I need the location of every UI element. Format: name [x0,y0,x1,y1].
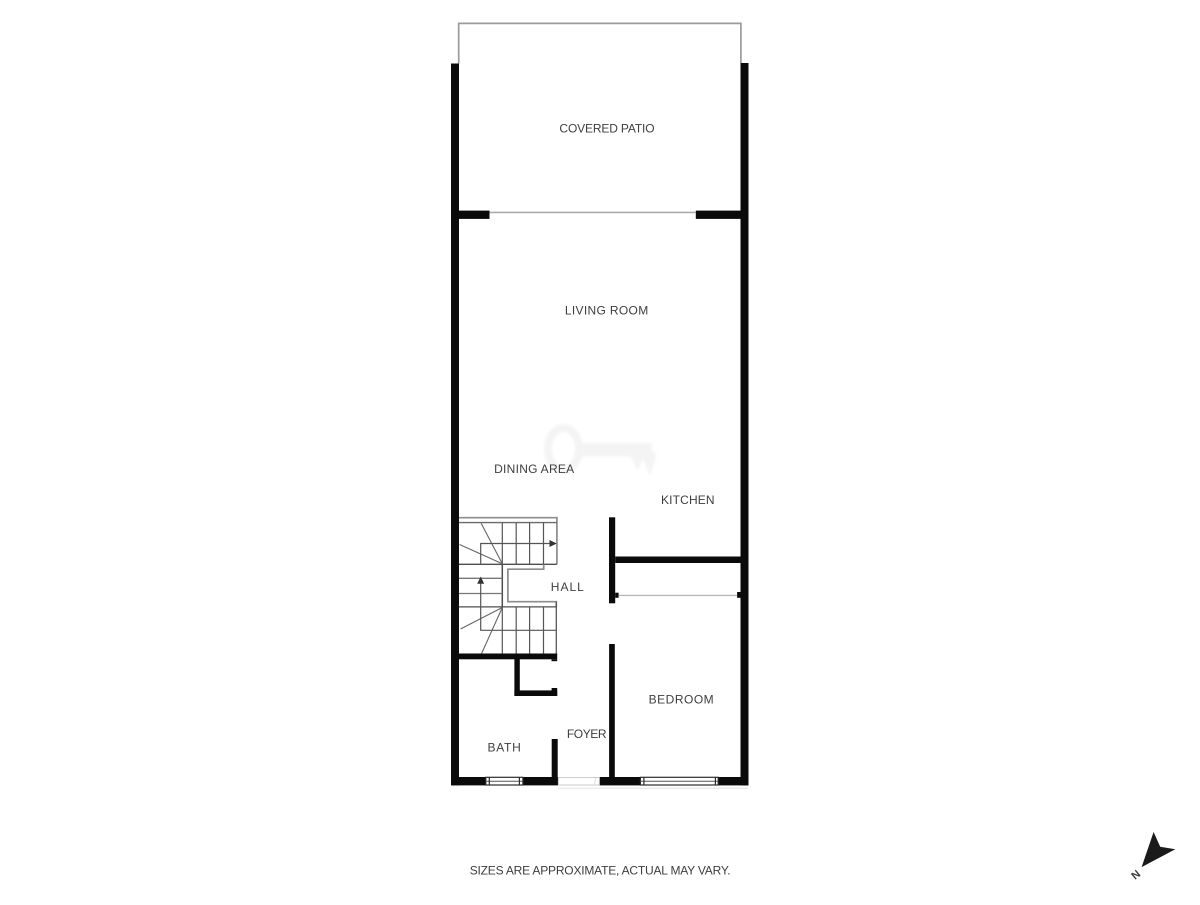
svg-text:COVERED PATIO: COVERED PATIO [559,122,654,136]
svg-text:BEDROOM: BEDROOM [649,693,715,707]
svg-text:KITCHEN: KITCHEN [661,493,715,507]
svg-text:DINING AREA: DINING AREA [494,462,574,476]
svg-text:FOYER: FOYER [567,727,607,741]
svg-text:HALL: HALL [551,580,585,594]
svg-text:SIZES ARE APPROXIMATE, ACTUAL: SIZES ARE APPROXIMATE, ACTUAL MAY VARY. [470,863,731,877]
svg-text:LIVING ROOM: LIVING ROOM [565,304,649,318]
svg-text:BATH: BATH [488,741,522,755]
